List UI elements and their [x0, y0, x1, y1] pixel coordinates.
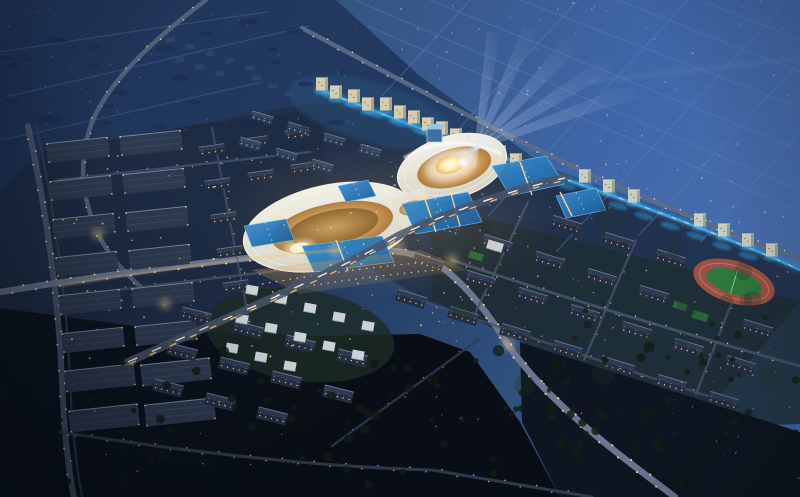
corner-shade: [0, 0, 800, 497]
city-masterplan-scene: [0, 0, 800, 497]
aerial-city-night-rendering: [0, 0, 800, 497]
